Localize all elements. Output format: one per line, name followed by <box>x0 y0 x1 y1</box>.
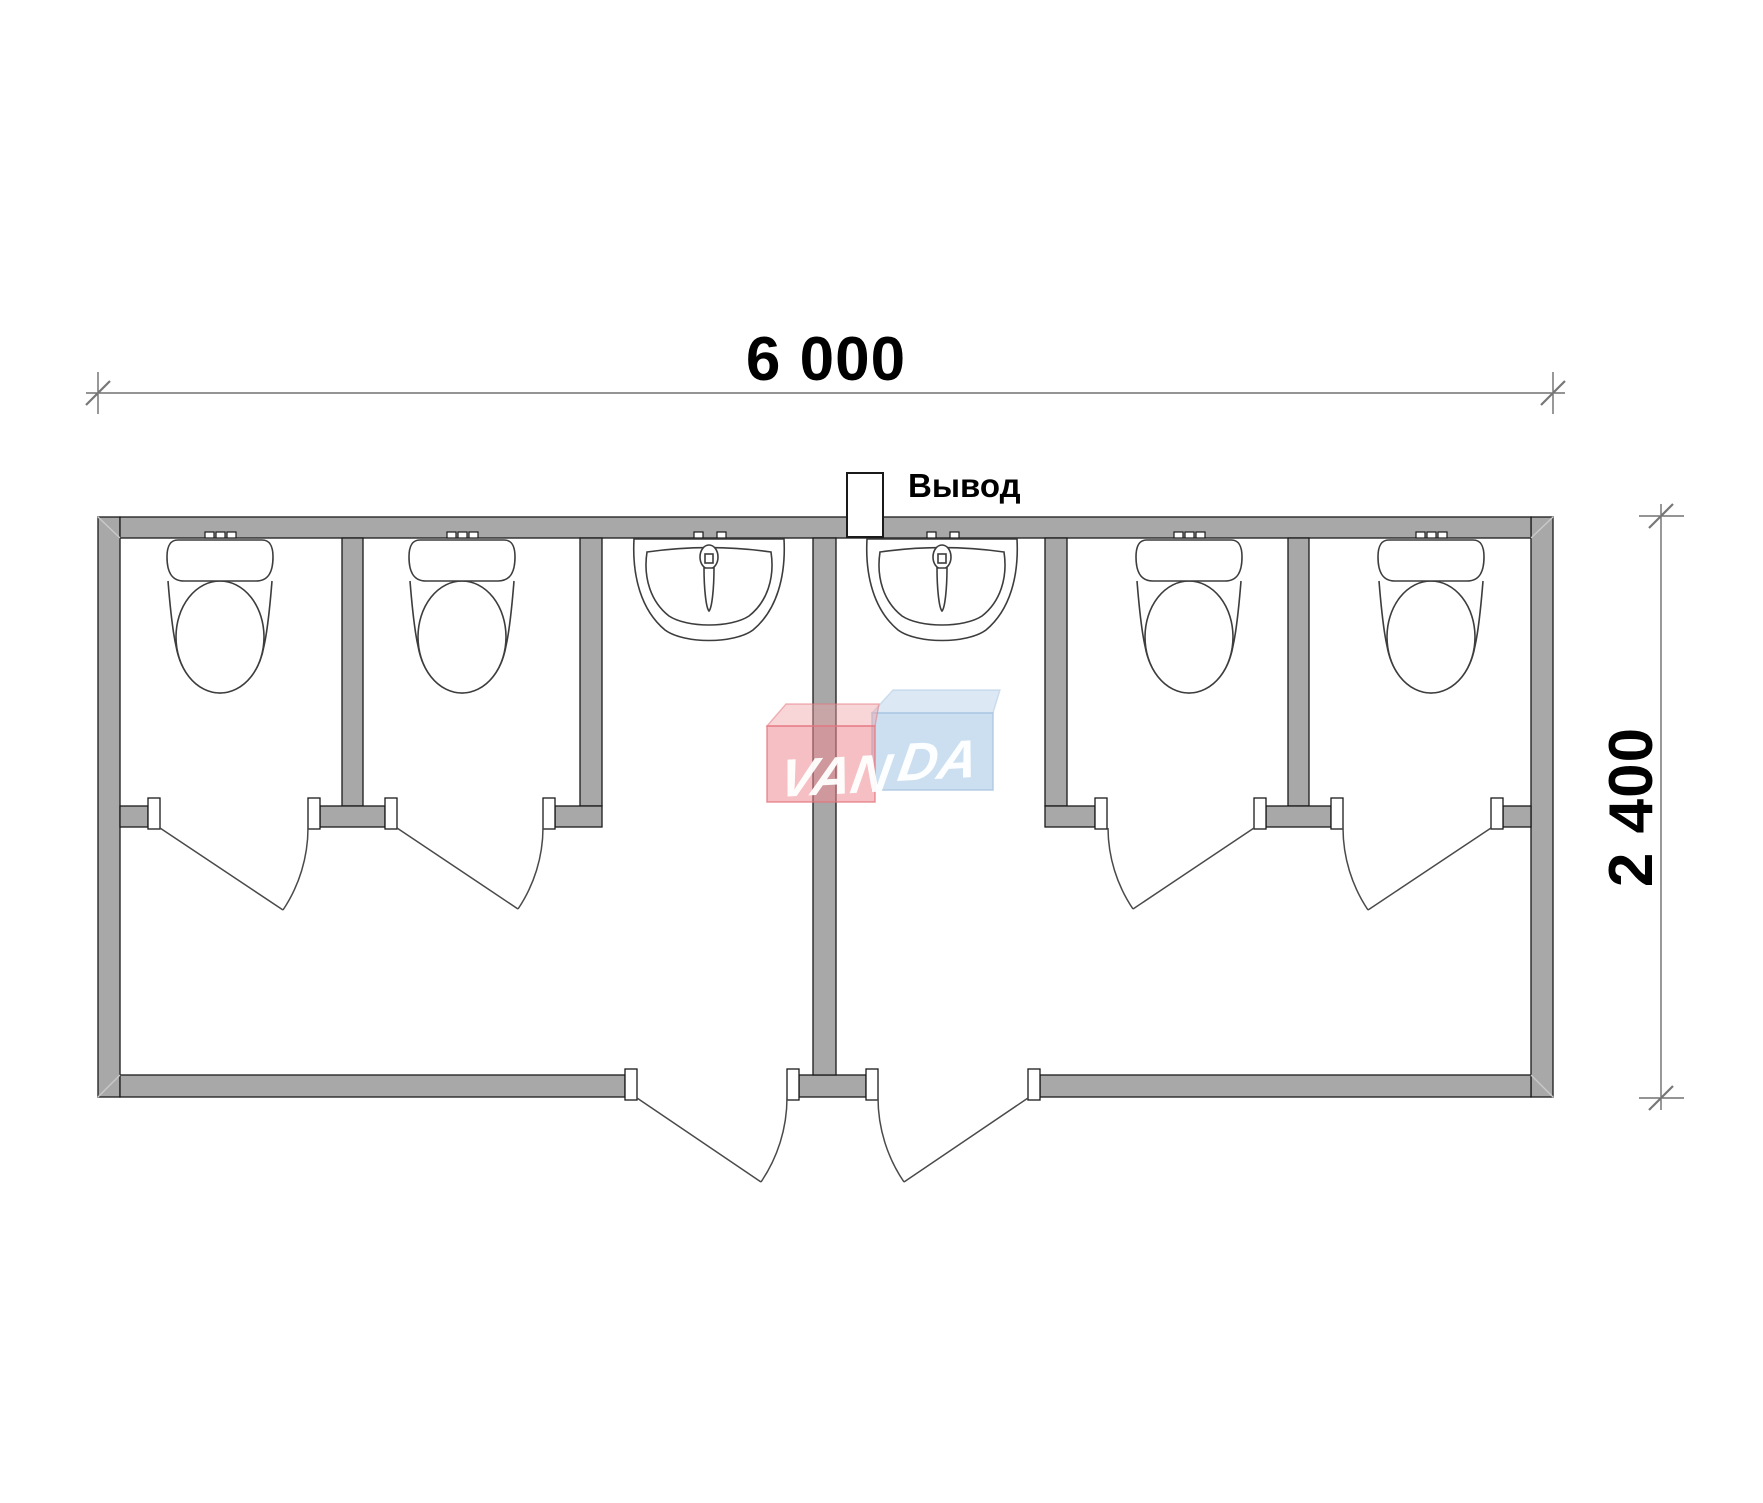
washbasin-left <box>634 532 785 641</box>
wall-outer-top <box>120 517 1531 538</box>
washbasin-right <box>867 532 1018 641</box>
door-entrance-left <box>637 1098 787 1182</box>
dimension-width-label: 6 000 <box>746 325 906 394</box>
dimension-top: 6 000 <box>86 325 1565 414</box>
logo-text-van: VAN <box>775 743 897 809</box>
jamb <box>543 798 555 829</box>
door-stall-2 <box>397 828 543 909</box>
wall-sink-stall3 <box>1045 538 1067 806</box>
wall-outer-bottom-right <box>1040 1075 1531 1097</box>
wall-outer-right <box>1531 517 1553 1097</box>
wall-front-stub-b <box>555 806 602 827</box>
jamb <box>385 798 397 829</box>
wall-outer-bottom-left <box>120 1075 625 1097</box>
jamb <box>1028 1069 1040 1100</box>
door-stall-3 <box>1108 828 1254 909</box>
door-stall-1 <box>160 828 308 910</box>
dimension-height-label: 2 400 <box>1597 727 1666 887</box>
jamb <box>1331 798 1343 829</box>
jamb <box>866 1069 878 1100</box>
jamb <box>1254 798 1266 829</box>
jamb <box>787 1069 799 1100</box>
toilet-4 <box>1378 532 1484 693</box>
toilet-2 <box>409 532 515 693</box>
vanda-watermark: VAN DA <box>767 690 1000 809</box>
wall-stall3-stall4 <box>1288 538 1309 806</box>
door-stall-4 <box>1343 828 1491 910</box>
logo-blue-flap <box>872 690 1000 713</box>
jamb <box>308 798 320 829</box>
wall-front-stub-d <box>1503 806 1531 827</box>
dimension-right: 2 400 <box>1597 504 1684 1110</box>
jamb <box>625 1069 637 1100</box>
wall-stall2-sink <box>580 538 602 806</box>
logo-text-da: DA <box>894 729 982 793</box>
outlet-box <box>847 473 883 537</box>
wall-bottom-center-stub <box>799 1075 866 1097</box>
door-entrance-right <box>878 1098 1028 1182</box>
floor-plan-drawing: 6 000 2 400 <box>0 0 1763 1503</box>
wall-stall1-stall2 <box>342 538 363 806</box>
outlet-label: Вывод <box>908 467 1021 504</box>
wall-front-tee-2 <box>1266 806 1331 827</box>
wall-front-stub-a <box>120 806 148 827</box>
jamb <box>1491 798 1503 829</box>
wall-front-stub-c <box>1045 806 1095 827</box>
toilet-1 <box>167 532 273 693</box>
floor-plan-canvas: 6 000 2 400 <box>0 0 1763 1503</box>
logo-red-flap <box>767 704 879 726</box>
jamb <box>1095 798 1107 829</box>
jamb <box>148 798 160 829</box>
wall-front-tee-1 <box>320 806 385 827</box>
wall-outer-left <box>98 517 120 1097</box>
toilet-3 <box>1136 532 1242 693</box>
